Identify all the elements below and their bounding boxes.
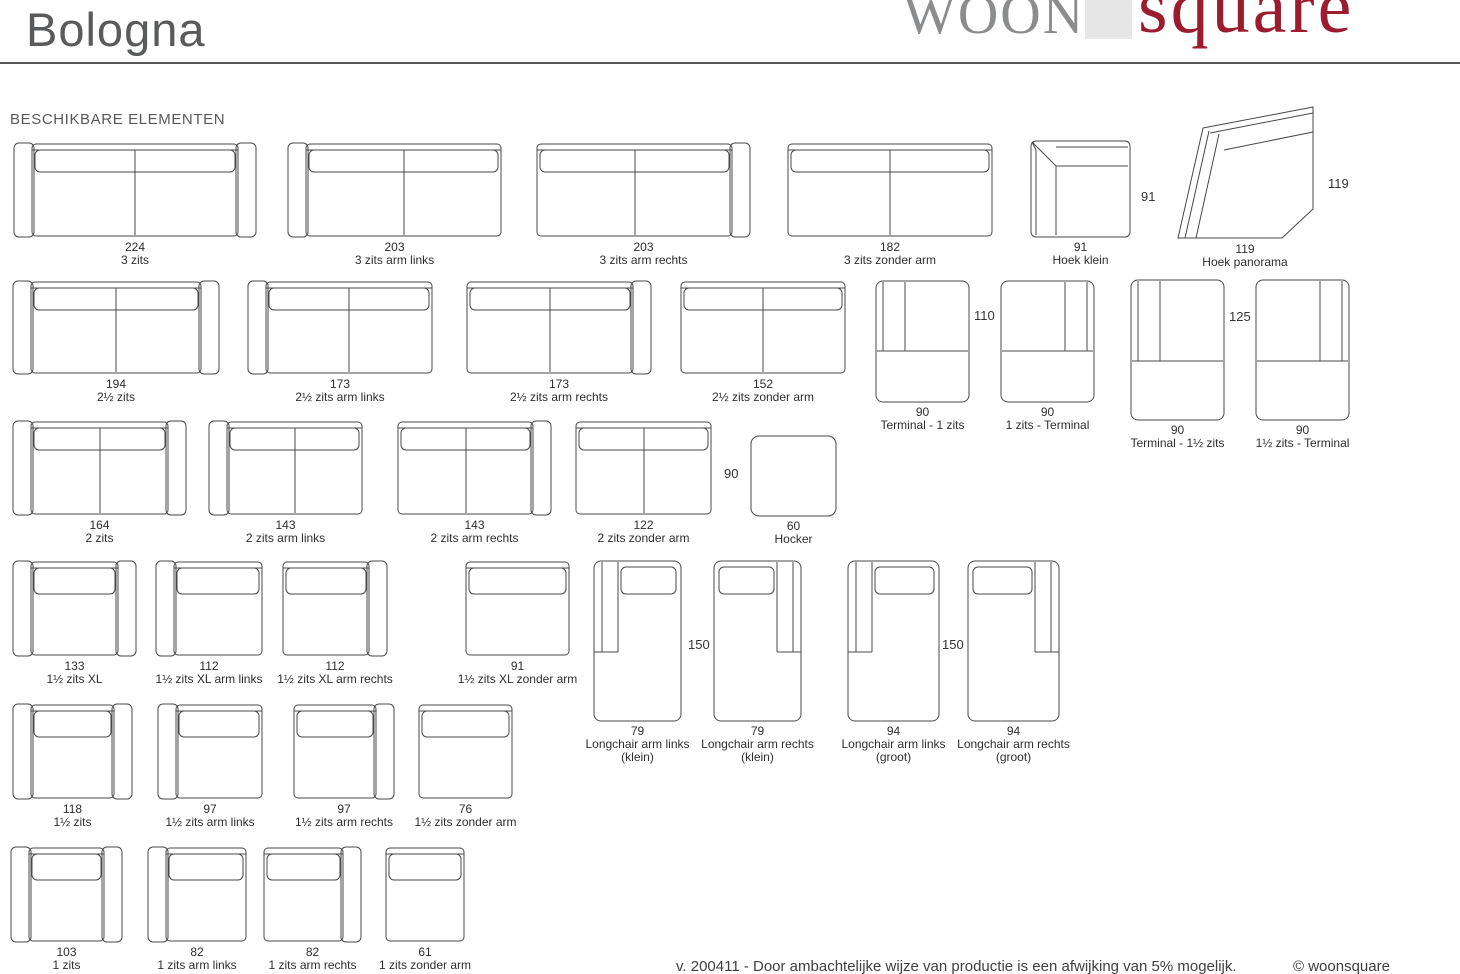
logo-square-mark [1085, 0, 1132, 39]
2-zits-arm-links [208, 420, 363, 516]
dimension-label: 150 [942, 637, 964, 652]
hoek-panorama-drawing [1176, 104, 1314, 240]
1half-zits-xl-arm-rechts [282, 560, 388, 657]
footer-copyright: © woonsquare [1293, 958, 1390, 974]
name-label: 2½ zits [0, 391, 236, 404]
longchair-arm-rechts-groot [967, 560, 1060, 722]
terminal-1half-zits [1130, 279, 1225, 421]
terminal-1-zits [875, 280, 970, 403]
longchair-arm-rechts-klein [713, 560, 802, 722]
2half-zits-zonder-arm [680, 280, 846, 375]
sofa-drawing [418, 703, 513, 800]
3-zits-arm-links [287, 142, 502, 238]
1-zits-arm-rechts [263, 846, 362, 943]
footer-version-note: v. 200411 - Door ambachtelijke wijze van… [676, 958, 1237, 974]
sofa-drawing [208, 420, 363, 516]
dimension-label: 91 [1141, 189, 1155, 204]
longchair-arm-links-klein [593, 560, 682, 722]
sofa-drawing [157, 703, 263, 800]
longchair-arm-rechts-groot-label: 94Longchair arm rechts(groot) [894, 725, 1134, 764]
2-zits [12, 420, 187, 516]
section-heading: BESCHIKBARE ELEMENTEN [10, 111, 225, 128]
terminal-drawing [875, 280, 970, 403]
2half-zits-zonder-arm-label: 1522½ zits zonder arm [643, 378, 883, 404]
sofa-drawing [155, 560, 263, 657]
longchair-drawing [967, 560, 1060, 722]
1half-zits-zonder-arm [418, 703, 513, 800]
1half-zits-zonder-arm-label: 761½ zits zonder arm [346, 803, 586, 829]
1half-zits-xl [12, 560, 137, 657]
sofa-drawing [12, 703, 133, 800]
hocker-drawing [750, 435, 837, 517]
dimension-label: 110 [974, 308, 995, 323]
2half-zits-arm-rechts [466, 280, 652, 375]
logo-square-text: square [1138, 0, 1354, 45]
1half-zits-xl-arm-links [155, 560, 263, 657]
2half-zits [12, 280, 220, 375]
longchair-drawing [593, 560, 682, 722]
sofa-drawing [147, 846, 247, 943]
3-zits-arm-links-label: 2033 zits arm links [275, 241, 515, 267]
sofa-drawing [247, 280, 433, 375]
3-zits [13, 142, 257, 238]
sofa-drawing [397, 420, 552, 516]
name-label: 1 zits zonder arm [305, 959, 545, 972]
dimension-label: 150 [688, 637, 710, 652]
name-label: 2½ zits arm links [220, 391, 460, 404]
header-divider [0, 62, 1460, 64]
3-zits-arm-rechts-label: 2033 zits arm rechts [524, 241, 764, 267]
name-label: Hoek panorama [1125, 256, 1365, 269]
2half-zits-arm-links-label: 1732½ zits arm links [220, 378, 460, 404]
3-zits-label: 2243 zits [15, 241, 255, 267]
sofa-drawing [287, 142, 502, 238]
terminal-drawing [1255, 279, 1350, 421]
terminal-drawing [1000, 280, 1095, 403]
sofa-drawing [12, 560, 137, 657]
3-zits-zonder-arm [787, 142, 993, 238]
1half-zits-terminal [1255, 279, 1350, 421]
hoek-klein [1030, 140, 1131, 238]
1-zits-arm-links [147, 846, 247, 943]
longchair-arm-links-groot [847, 560, 940, 722]
name-label: 3 zits [15, 254, 255, 267]
dimension-label: 119 [1328, 176, 1349, 191]
hoek-panorama-label: 119Hoek panorama [1125, 243, 1365, 269]
hocker [750, 435, 837, 517]
sofa-drawing [466, 280, 652, 375]
page-title: Bologna [26, 2, 206, 57]
sofa-drawing [263, 846, 362, 943]
name-label: 2½ zits zonder arm [643, 391, 883, 404]
logo-woon-text: WOON [903, 0, 1085, 43]
sofa-drawing [12, 420, 187, 516]
sofa-drawing [575, 420, 712, 516]
1half-zits-xl-zonder-arm [465, 560, 570, 657]
sofa-drawing [13, 142, 257, 238]
1half-zits-arm-rechts [293, 703, 395, 800]
2half-zits-arm-links [247, 280, 433, 375]
sofa-drawing [787, 142, 993, 238]
2-zits-zonder-arm [575, 420, 712, 516]
sofa-drawing [12, 280, 220, 375]
name-label: 3 zits arm links [275, 254, 515, 267]
1-zits [10, 846, 123, 943]
dimension-label: 125 [1229, 309, 1251, 324]
1-zits-terminal [1000, 280, 1095, 403]
sofa-drawing [385, 846, 465, 943]
2half-zits-label: 1942½ zits [0, 378, 236, 404]
terminal-drawing [1130, 279, 1225, 421]
page: Bologna WOON square BESCHIKBARE ELEMENTE… [0, 0, 1460, 974]
name-label: 1½ zits zonder arm [346, 816, 586, 829]
name-label: 3 zits arm rechts [524, 254, 764, 267]
1-zits-zonder-arm [385, 846, 465, 943]
hoek-klein-drawing [1030, 140, 1131, 238]
sofa-drawing [282, 560, 388, 657]
hoek-panorama [1176, 104, 1314, 240]
variant-label: (groot) [894, 751, 1134, 764]
1half-zits-terminal-label: 901½ zits - Terminal [1183, 424, 1423, 450]
longchair-drawing [713, 560, 802, 722]
longchair-drawing [847, 560, 940, 722]
sofa-drawing [10, 846, 123, 943]
1half-zits-arm-links [157, 703, 263, 800]
hocker-label: 60Hocker [674, 520, 914, 546]
3-zits-arm-rechts [536, 142, 751, 238]
1half-zits [12, 703, 133, 800]
name-label: 1½ zits - Terminal [1183, 437, 1423, 450]
2-zits-arm-rechts [397, 420, 552, 516]
sofa-drawing [293, 703, 395, 800]
1-zits-zonder-arm-label: 611 zits zonder arm [305, 946, 545, 972]
sofa-drawing [680, 280, 846, 375]
dimension-label: 90 [724, 466, 738, 481]
sofa-drawing [465, 560, 570, 657]
sofa-drawing [536, 142, 751, 238]
name-label: Hocker [674, 533, 914, 546]
